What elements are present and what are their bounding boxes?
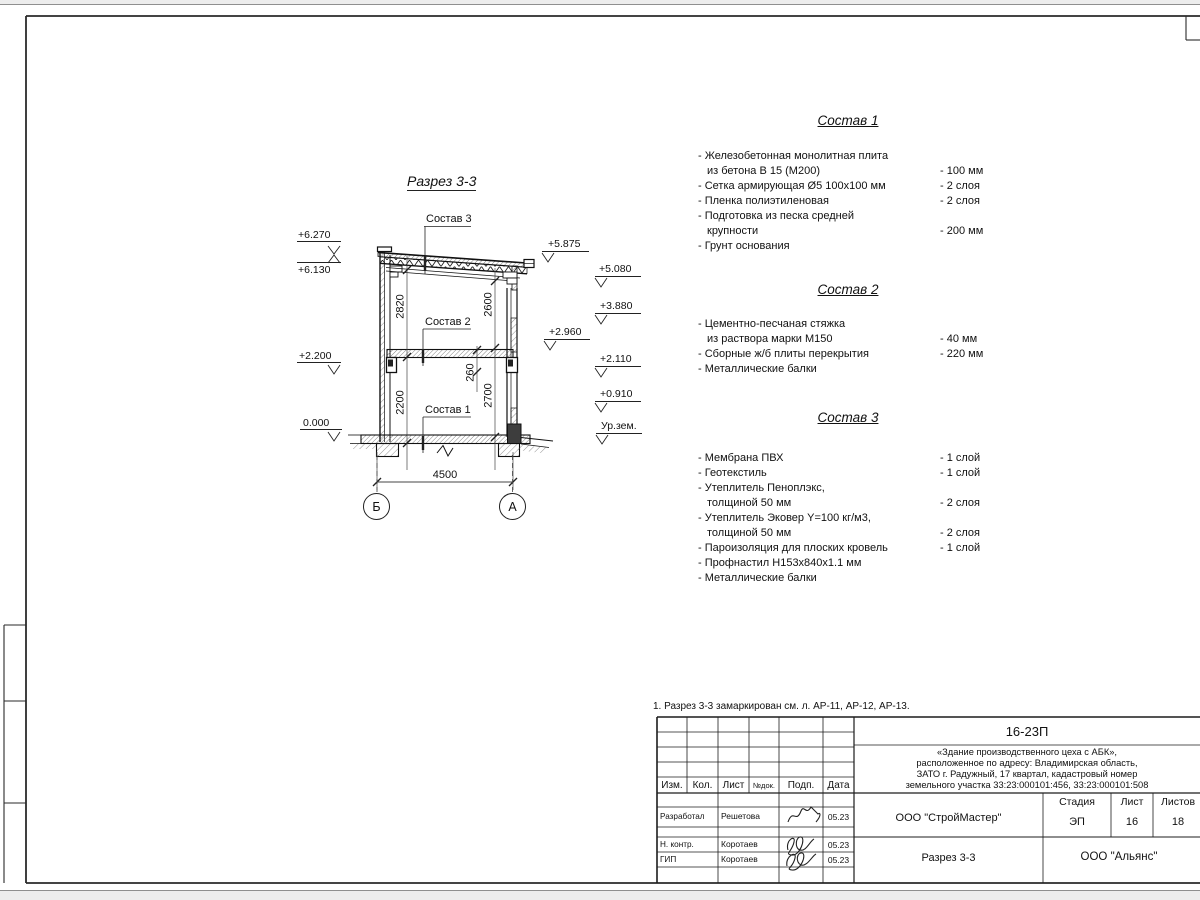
address-line: «Здание производственного цеха с АБК», — [854, 747, 1200, 758]
composition-item: - Цементно-песчаная стяжкаиз раствора ма… — [698, 317, 998, 347]
composition-items: - Железобетонная монолитная плитаиз бето… — [698, 149, 998, 254]
dim-2200: 2200 — [395, 373, 408, 433]
drawing-sheet: Разрез 3-3 Состав 3 Состав 2 Состав 1 +6… — [0, 0, 1200, 900]
sheet-number: 16 — [1111, 816, 1153, 829]
axis-bubble-a: А — [499, 493, 526, 520]
sheet-note: 1. Разрез 3-3 замаркирован см. л. АР-11,… — [653, 701, 910, 713]
composition-list-3: Состав 3 - Мембрана ПВХ- 1 слой- Геотекс… — [698, 410, 998, 586]
composition-list-1: Состав 1 - Железобетонная монолитная пли… — [698, 113, 998, 254]
composition-item: - Профнастил Н153х840х1.1 мм — [698, 556, 998, 571]
sign-date-ncontrol: 05.23 — [823, 841, 854, 851]
composition-list-2: Состав 2 - Цементно-песчаная стяжкаиз ра… — [698, 282, 998, 377]
composition-items: - Цементно-песчаная стяжкаиз раствора ма… — [698, 317, 998, 377]
sign-name-ncontrol: Коротаев — [721, 840, 758, 850]
sign-role-ncontrol: Н. контр. — [660, 840, 694, 849]
axis-bubble-b: Б — [363, 493, 390, 520]
composition-title: Состав 1 — [698, 113, 998, 128]
left-side-stamp — [4, 625, 26, 883]
address-line: земельного участка 33:23:000101:456, 33:… — [854, 780, 1200, 791]
sign-name-developer: Решетова — [721, 812, 760, 822]
page-edge-bottom — [0, 890, 1200, 900]
building-section — [348, 247, 553, 457]
dim-260: 260 — [465, 343, 478, 403]
titleblock-project-address: «Здание производственного цеха с АБК», р… — [854, 747, 1200, 791]
titleblock-customer: ООО "Альянс" — [1043, 851, 1195, 864]
sign-name-gip: Коротаев — [721, 855, 758, 865]
stage-col-header: Стадия — [1043, 796, 1111, 808]
axis-letter-a: А — [508, 500, 516, 514]
signature-scribbles — [787, 807, 820, 870]
elevation-0910: +0.910 — [600, 388, 632, 400]
stage-value: ЭП — [1043, 816, 1111, 829]
col-header-kol: Кол. — [687, 780, 718, 792]
col-header-ndok: №док. — [749, 782, 779, 791]
callout-sostav-2: Состав 2 — [425, 316, 471, 329]
titleblock-section-name: Разрез 3-3 — [854, 852, 1043, 865]
composition-item: - Металлические балки — [698, 362, 998, 377]
col-header-izm: Изм. — [657, 780, 687, 792]
composition-item: - Утеплитель Эковер Y=100 кг/м3,толщиной… — [698, 511, 998, 541]
composition-items: - Мембрана ПВХ- 1 слой- Геотекстиль- 1 с… — [698, 451, 998, 586]
section-title: Разрез 3-3 — [407, 173, 476, 191]
composition-item: - Грунт основания — [698, 239, 998, 254]
sign-role-gip: ГИП — [660, 855, 676, 864]
col-header-podp: Подп. — [779, 780, 823, 792]
address-line: ЗАТО г. Радужный, 17 квартал, кадастровы… — [854, 769, 1200, 780]
dim-2820: 2820 — [395, 277, 408, 337]
elevation-ground-level: Ур.зем. — [601, 420, 637, 432]
elevation-2200: +2.200 — [299, 350, 331, 362]
elevation-0000: 0.000 — [303, 417, 329, 429]
elevation-3880: +3.880 — [600, 300, 632, 312]
composition-item: - Сетка армирующая Ø5 100x100 мм- 2 слоя — [698, 179, 998, 194]
composition-item: - Железобетонная монолитная плитаиз бето… — [698, 149, 998, 179]
composition-item: - Сборные ж/б плиты перекрытия- 220 мм — [698, 347, 998, 362]
elevation-2110: +2.110 — [600, 353, 632, 365]
composition-item: - Пароизоляция для плоских кровель- 1 сл… — [698, 541, 998, 556]
sign-role-developer: Разработал — [660, 812, 705, 821]
address-line: расположенное по адресу: Владимирская об… — [854, 758, 1200, 769]
dim-4500: 4500 — [420, 469, 470, 482]
composition-item: - Мембрана ПВХ- 1 слой — [698, 451, 998, 466]
axis-letter-b: Б — [372, 500, 380, 514]
sign-date-developer: 05.23 — [823, 813, 854, 823]
titleblock-org: ООО "СтройМастер" — [854, 812, 1043, 825]
callout-sostav-3: Состав 3 — [426, 213, 472, 226]
elevation-5875: +5.875 — [548, 238, 580, 250]
elevation-6270: +6.270 — [298, 229, 330, 241]
callout-sostav-1: Состав 1 — [425, 404, 471, 417]
corner-stamp-box — [1186, 16, 1200, 40]
sign-date-gip: 05.23 — [823, 856, 854, 866]
composition-title: Состав 3 — [698, 410, 998, 425]
elevation-2960: +2.960 — [549, 326, 581, 338]
sheets-col-header: Листов — [1153, 796, 1200, 808]
elevation-6130: +6.130 — [298, 264, 330, 276]
col-header-data: Дата — [823, 780, 854, 792]
titleblock-doc-code: 16-23П — [854, 725, 1200, 740]
col-header-list: Лист — [718, 780, 749, 792]
sheets-total: 18 — [1153, 816, 1200, 829]
composition-item: - Утеплитель Пеноплэкс,толщиной 50 мм- 2… — [698, 481, 998, 511]
elevation-5080: +5.080 — [599, 263, 631, 275]
composition-item: - Подготовка из песка среднейкрупности- … — [698, 209, 998, 239]
composition-item: - Пленка полиэтиленовая- 2 слоя — [698, 194, 998, 209]
composition-item: - Металлические балки — [698, 571, 998, 586]
dim-2600: 2600 — [483, 275, 496, 335]
sheet-col-header: Лист — [1111, 796, 1153, 808]
composition-title: Состав 2 — [698, 282, 998, 297]
dim-2700: 2700 — [483, 366, 496, 426]
composition-item: - Геотекстиль- 1 слой — [698, 466, 998, 481]
